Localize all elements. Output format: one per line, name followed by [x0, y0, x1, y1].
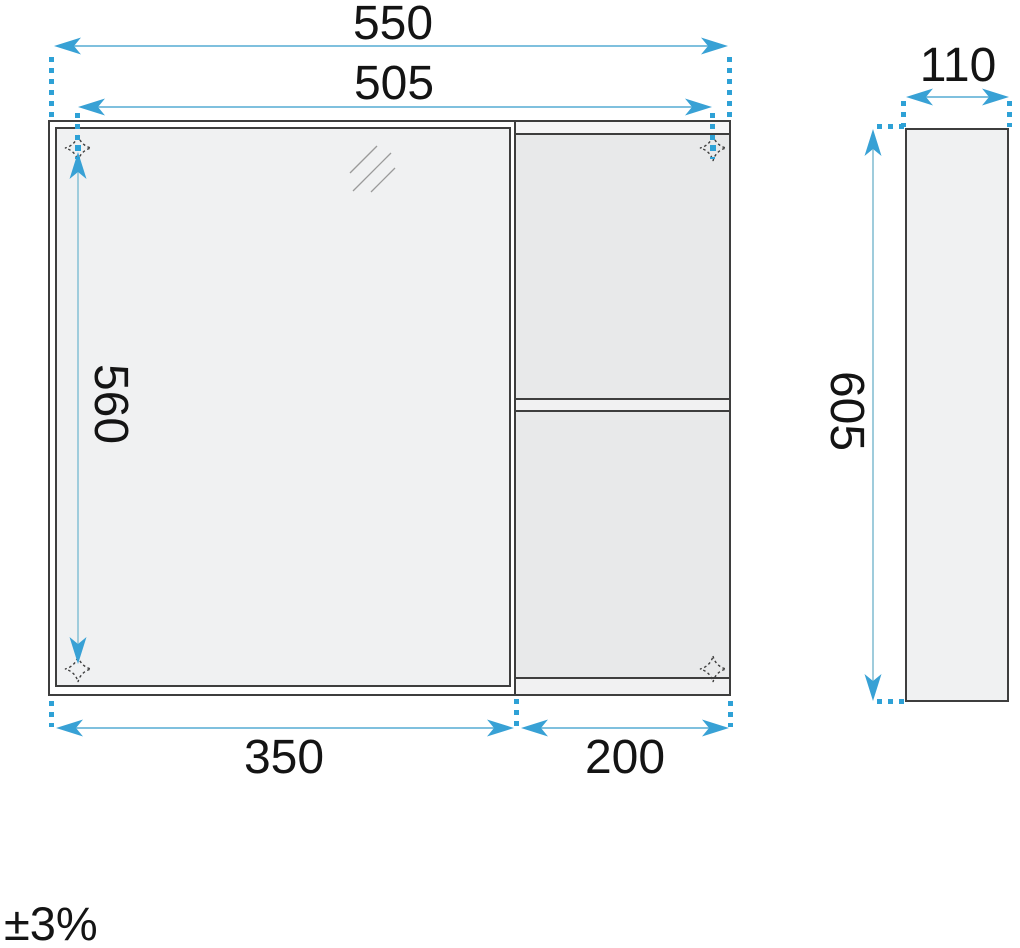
extension-line: [75, 113, 80, 159]
dimension-line-200: [518, 719, 733, 737]
front-view: [48, 120, 731, 696]
shelf-section: [514, 122, 729, 694]
dim-label-depth: 110: [920, 42, 997, 90]
dim-label-mounting-height: 560: [86, 364, 134, 444]
extension-line: [727, 57, 732, 119]
dimension-line-550: [50, 37, 732, 55]
dimension-line-605: [864, 126, 882, 704]
extension-line: [49, 701, 54, 727]
dimension-drawing: 550 505 560 350 200 110 605 ±3%: [0, 0, 1020, 948]
shelf-compartment-upper: [516, 135, 729, 398]
shelf-board: [516, 398, 729, 412]
dimension-line-560: [69, 148, 87, 668]
dim-label-height: 605: [822, 371, 870, 451]
mount-center-dot: [75, 145, 81, 151]
shelf-compartment-lower: [516, 412, 729, 677]
side-view: [905, 128, 1009, 702]
extension-line: [49, 57, 54, 119]
dim-label-mirror-width: 350: [244, 734, 324, 782]
dimension-line-110: [903, 88, 1012, 106]
extension-line: [1007, 101, 1012, 127]
dimension-line-350: [52, 719, 518, 737]
mounting-point-icon: [698, 654, 728, 684]
extension-line: [710, 113, 715, 159]
mirror-reflection-icon: [337, 137, 409, 203]
dimension-line-505: [74, 98, 716, 116]
mount-center-dot: [710, 145, 716, 151]
dim-label-shelf-width: 200: [585, 734, 665, 782]
extension-line: [877, 699, 904, 704]
extension-line: [877, 124, 904, 129]
extension-line: [728, 701, 733, 727]
tolerance-note: ±3%: [4, 900, 98, 947]
extension-line: [514, 699, 519, 727]
